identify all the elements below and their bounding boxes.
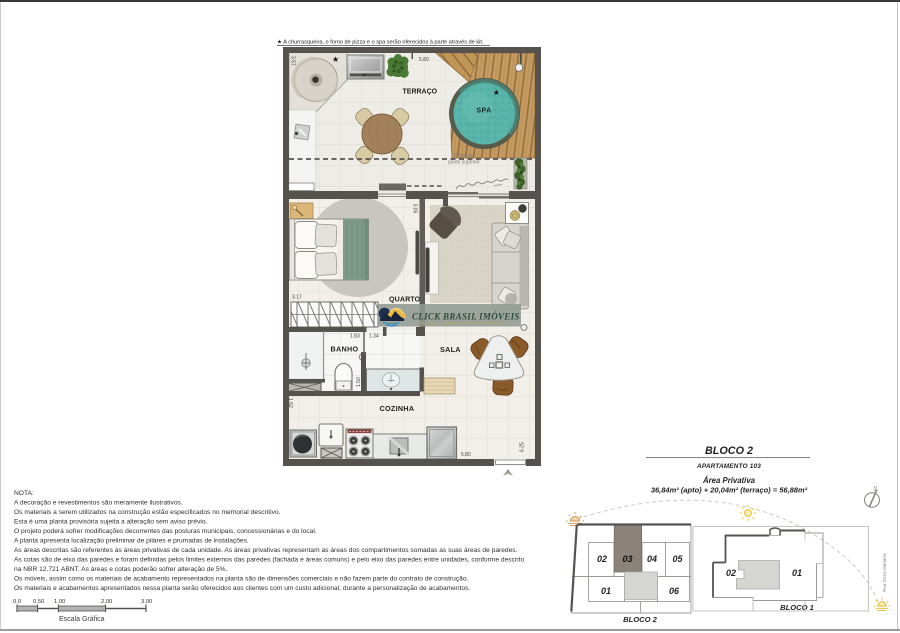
svg-text:APARTAMENTO 103: APARTAMENTO 103 [696, 463, 761, 470]
svg-text:BANHO: BANHO [331, 345, 359, 354]
svg-text:5.80: 5.80 [419, 57, 429, 63]
svg-text:As cotas são de eixo das pared: As cotas são de eixo das paredes e foram… [14, 557, 524, 564]
svg-text:BLOCO 1: BLOCO 1 [780, 603, 814, 612]
svg-text:REF. IMOVEL: APARTAMENTO RUA D: REF. IMOVEL: APARTAMENTO RUA DONA MARIAN… [420, 321, 509, 325]
svg-text:TERRAÇO: TERRAÇO [403, 89, 438, 96]
svg-text:1.00: 1.00 [54, 599, 65, 605]
svg-text:SALA: SALA [440, 345, 461, 354]
svg-text:06: 06 [669, 586, 680, 596]
svg-text:3.05: 3.05 [412, 204, 418, 214]
svg-text:3.57: 3.57 [290, 56, 296, 66]
svg-text:pavto superior: pavto superior [448, 160, 480, 166]
svg-text:Os móveis, assim como os mater: Os móveis, assim como os materiais de ac… [14, 576, 469, 583]
svg-text:★: ★ [332, 55, 339, 64]
svg-text:1.34: 1.34 [369, 334, 379, 340]
svg-text:CLICK BRASIL IMÓVEIS: CLICK BRASIL IMÓVEIS [412, 312, 520, 322]
svg-text:Escala Gráfica: Escala Gráfica [59, 616, 105, 623]
svg-text:★: ★ [493, 88, 500, 97]
svg-text:Projeção: Projeção [454, 153, 474, 159]
svg-text:Os materiais e acabamentos apr: Os materiais e acabamentos apresentados … [14, 585, 470, 592]
svg-text:BLOCO 2: BLOCO 2 [623, 615, 658, 624]
svg-text:A decoração e revestimentos sã: A decoração e revestimentos são merament… [14, 500, 183, 507]
svg-text:05: 05 [672, 554, 683, 564]
svg-text:02: 02 [597, 554, 607, 564]
svg-text:5.80: 5.80 [461, 452, 471, 458]
svg-text:A planta apresenta localização: A planta apresenta localização prelimina… [14, 538, 249, 545]
svg-text:01: 01 [601, 586, 611, 596]
svg-text:3.00: 3.00 [141, 599, 152, 605]
svg-text:3.17: 3.17 [292, 295, 302, 301]
svg-text:Rua Dona Mariana: Rua Dona Mariana [882, 553, 887, 592]
svg-text:na NBR 12.721 ABNT. As áreas e: na NBR 12.721 ABNT. As áreas e cotas pod… [14, 566, 228, 573]
svg-text:1.83: 1.83 [350, 334, 360, 340]
svg-text:Área Privativa: Área Privativa [702, 476, 756, 485]
svg-text:O projeto poderá sofrer modifi: O projeto poderá sofrer modificações dec… [14, 528, 317, 535]
svg-text:BLOCO 2: BLOCO 2 [705, 445, 753, 457]
svg-text:02: 02 [726, 568, 736, 578]
svg-text:COZINHA: COZINHA [380, 404, 415, 413]
svg-text:04: 04 [647, 554, 657, 564]
svg-text:6.25: 6.25 [520, 442, 526, 452]
svg-text:NOTA:: NOTA: [14, 490, 34, 497]
svg-text:2.00: 2.00 [101, 599, 112, 605]
svg-text:QUARTO: QUARTO [389, 296, 421, 304]
svg-text:Esta é uma planta provisória s: Esta é uma planta provisória sujeita a a… [14, 519, 208, 526]
svg-text:Os materiais a serem utilizado: Os materiais a serem utilizados na const… [14, 509, 281, 516]
svg-text:As áreas descritas são referen: As áreas descritas são referentes às áre… [14, 547, 518, 554]
svg-text:0.50: 0.50 [33, 599, 44, 605]
svg-text:0.0: 0.0 [13, 599, 21, 605]
svg-text:★ A churrasqueira, o forno de: ★ A churrasqueira, o forno de pizza e o … [277, 39, 484, 46]
svg-text:36,84m² (apto) + 20,04m² (terr: 36,84m² (apto) + 20,04m² (terraço) = 56,… [651, 486, 808, 495]
svg-text:03: 03 [622, 554, 632, 564]
svg-text:SPA: SPA [476, 108, 491, 115]
svg-text:01: 01 [792, 568, 802, 578]
